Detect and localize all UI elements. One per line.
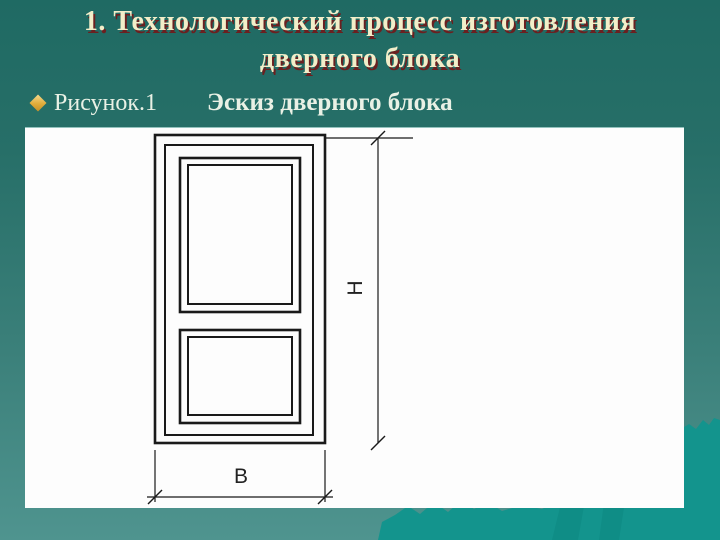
height-dimension-label: Н [344,280,367,295]
figure-caption-row: Рисунок.1 Эскиз дверного блока [30,88,690,118]
upper-panel-outer [180,158,300,312]
lower-panel-inner [188,337,292,415]
figure-canvas: Н В [25,128,684,508]
slide-title: 1. Технологический процесс изготовления … [0,3,720,77]
upper-panel-inner [188,165,292,304]
slide-title-line-2: дверного блока [0,40,720,77]
slide-title-line-1: 1. Технологический процесс изготовления [0,3,720,40]
figure-caption: Эскиз дверного блока [207,88,453,118]
width-dimension-label: В [234,465,248,488]
lower-panel-outer [180,330,300,423]
door-sketch: Н В [25,128,684,508]
figure-label: Рисунок.1 [54,88,157,118]
diamond-bullet-icon [30,95,47,112]
